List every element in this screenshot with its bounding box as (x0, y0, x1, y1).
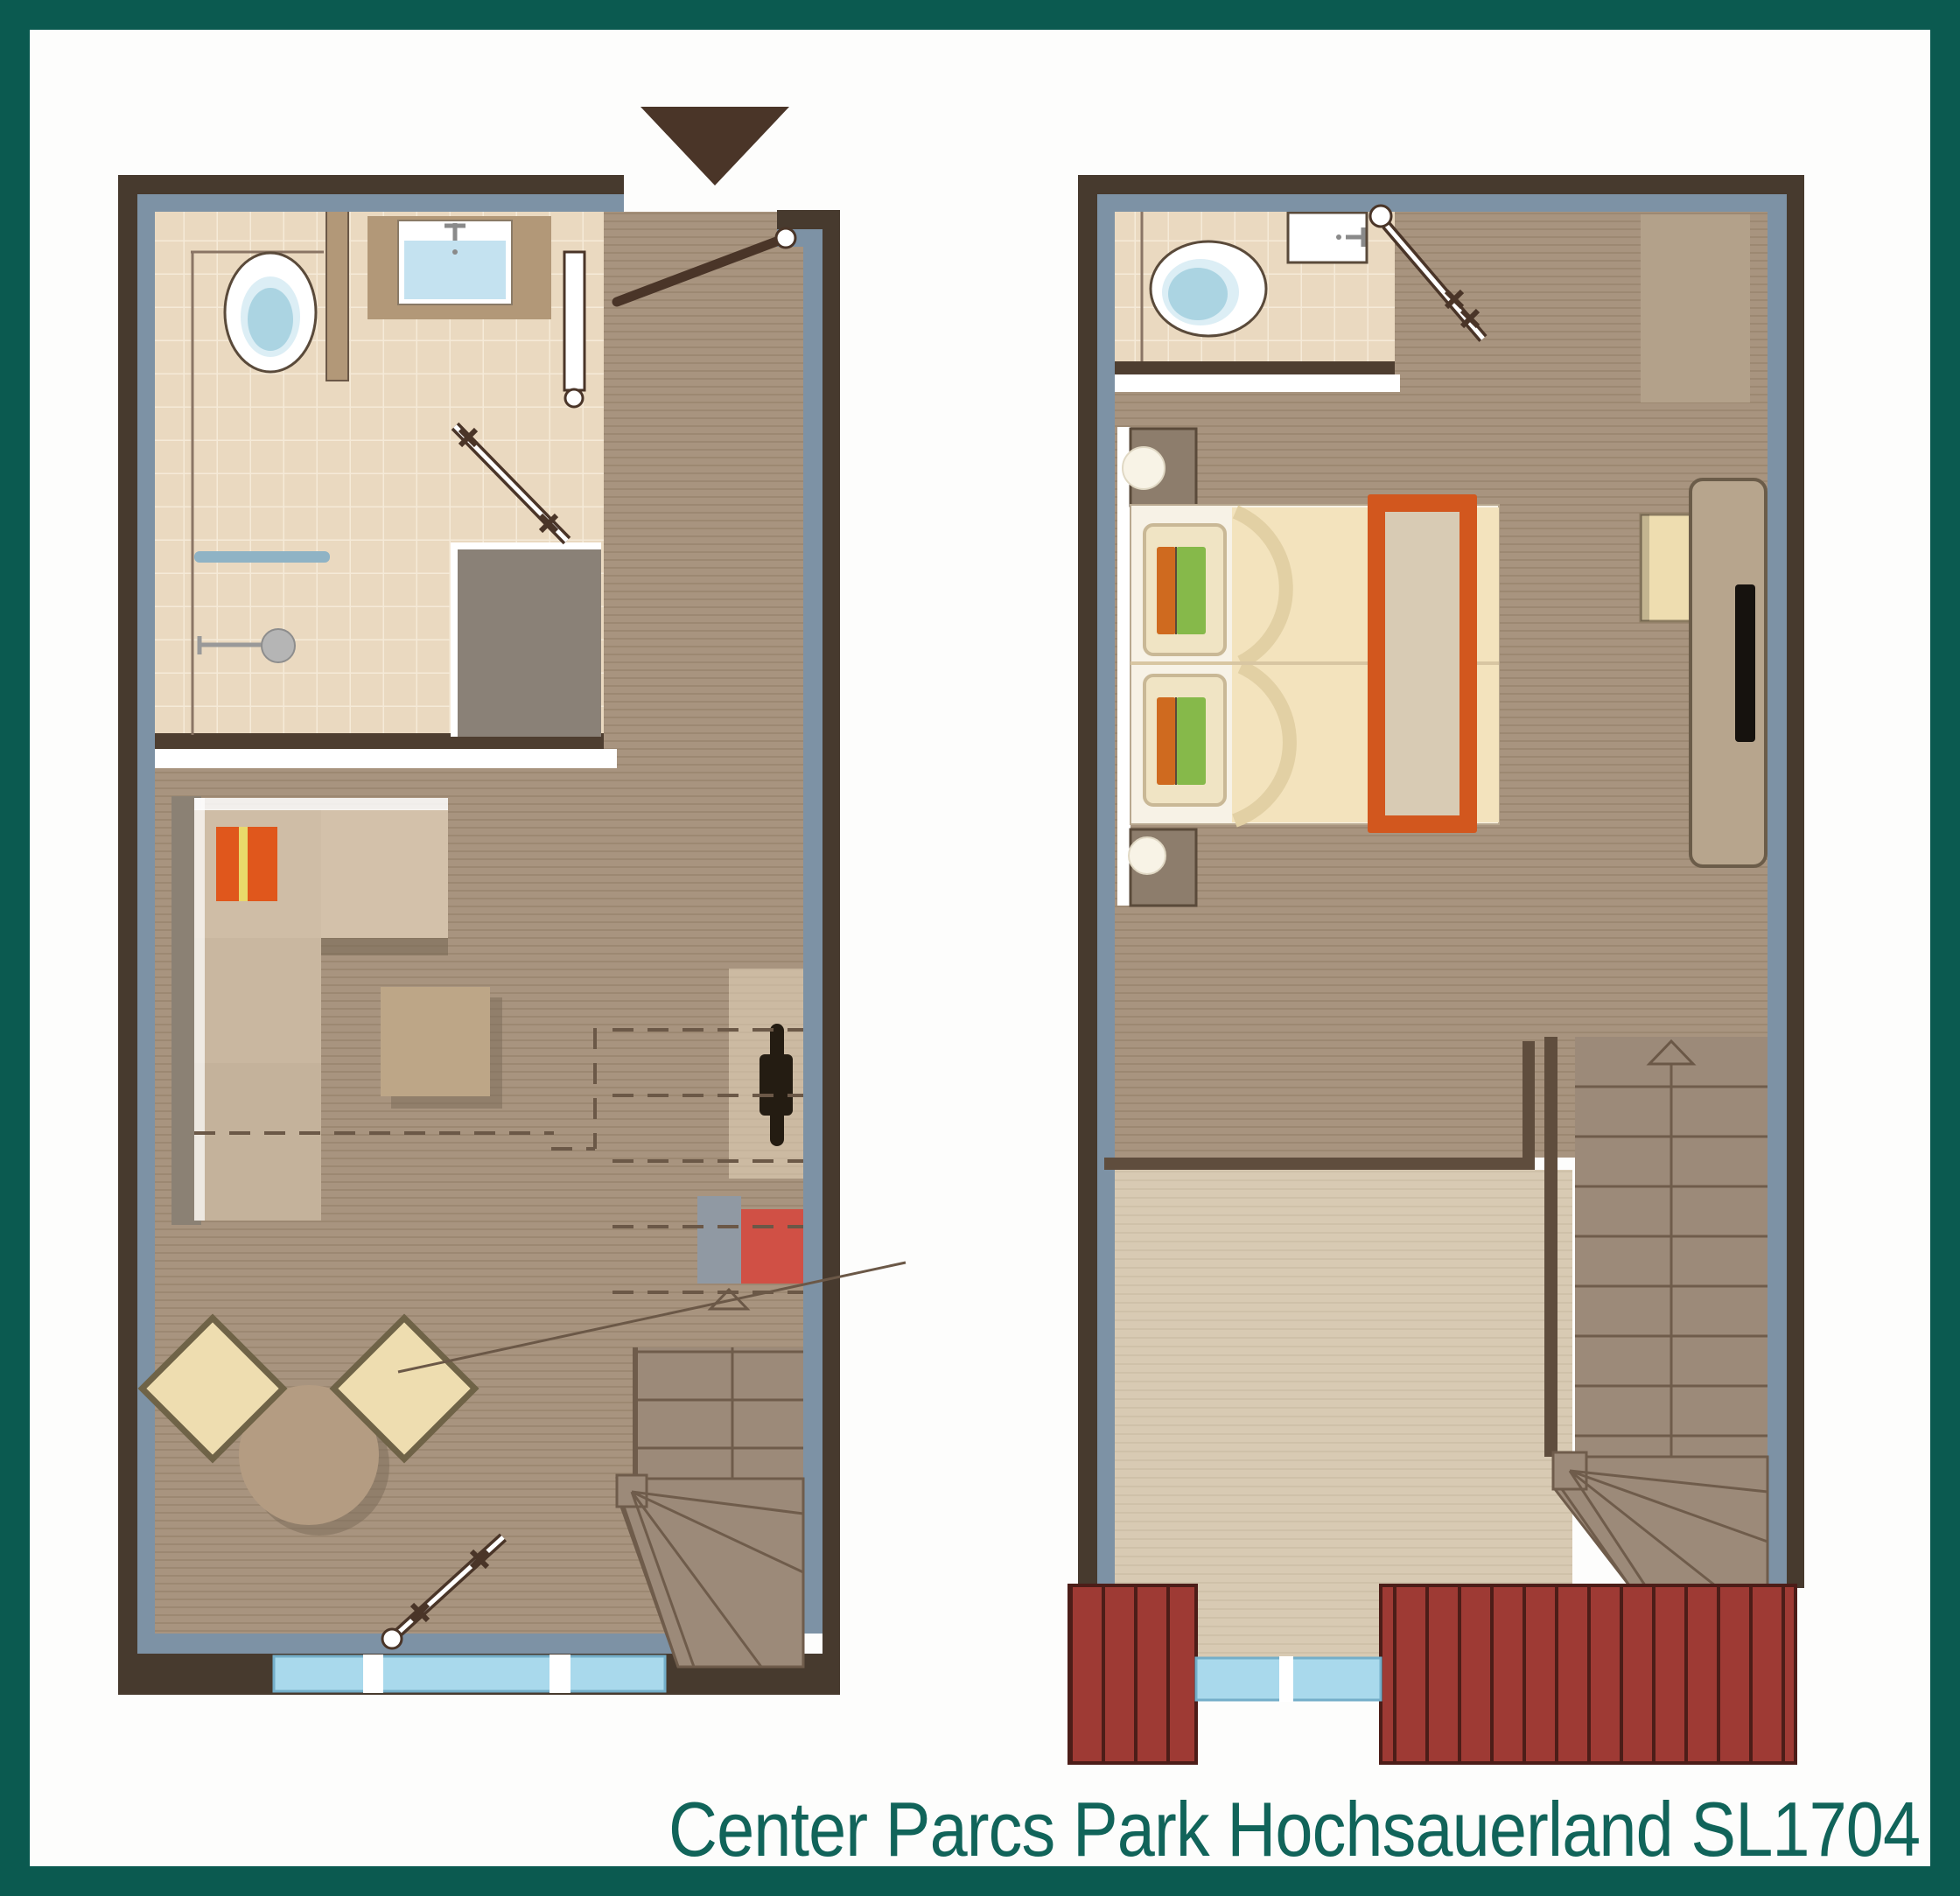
ground-floor-plan (118, 175, 914, 1695)
roof-deck-right (1381, 1585, 1795, 1763)
pillow-top (1144, 525, 1225, 654)
upper-openings (1069, 1585, 1795, 1763)
ottoman (381, 987, 490, 1096)
pillow-bottom (1144, 675, 1225, 805)
caption-text: Center Parcs Park Hochsauerland SL1704 (668, 1786, 1920, 1872)
caption: Center Parcs Park Hochsauerland SL1704 (668, 1785, 1920, 1874)
living-room-window (274, 1656, 665, 1691)
headboard (1117, 427, 1130, 906)
staircase-upper (1553, 1037, 1767, 1585)
lamp-bottom (1129, 837, 1165, 874)
newel-post (617, 1475, 647, 1507)
storage-box-red (741, 1209, 803, 1284)
hall-wardrobe (458, 549, 601, 737)
roof-deck-left (1069, 1585, 1196, 1763)
upper-door-hinge (1370, 206, 1391, 227)
sofa-seat-3 (194, 1063, 321, 1221)
storage-box-gray (697, 1196, 741, 1284)
bathroom-wall-trim (155, 749, 617, 768)
sofa-chaise (321, 809, 448, 938)
entrance-arrow-icon (640, 107, 789, 185)
floorplan-image: Center Parcs Park Hochsauerland SL1704 (0, 0, 1960, 1896)
terrace-door-hinge (382, 1629, 402, 1648)
bathroom-door-hinge (565, 389, 583, 407)
bathroom-door-leaf (564, 252, 584, 390)
closet (1641, 214, 1750, 402)
bed-runner (1368, 494, 1477, 833)
towel-rail (194, 551, 330, 563)
upper-floor-plan (1069, 175, 1804, 1763)
partition-stub (326, 208, 348, 381)
lamp-top (1123, 447, 1165, 489)
tv (1735, 584, 1755, 742)
sofa-seat-2 (194, 938, 321, 1063)
entry-door-hinge (776, 228, 795, 248)
